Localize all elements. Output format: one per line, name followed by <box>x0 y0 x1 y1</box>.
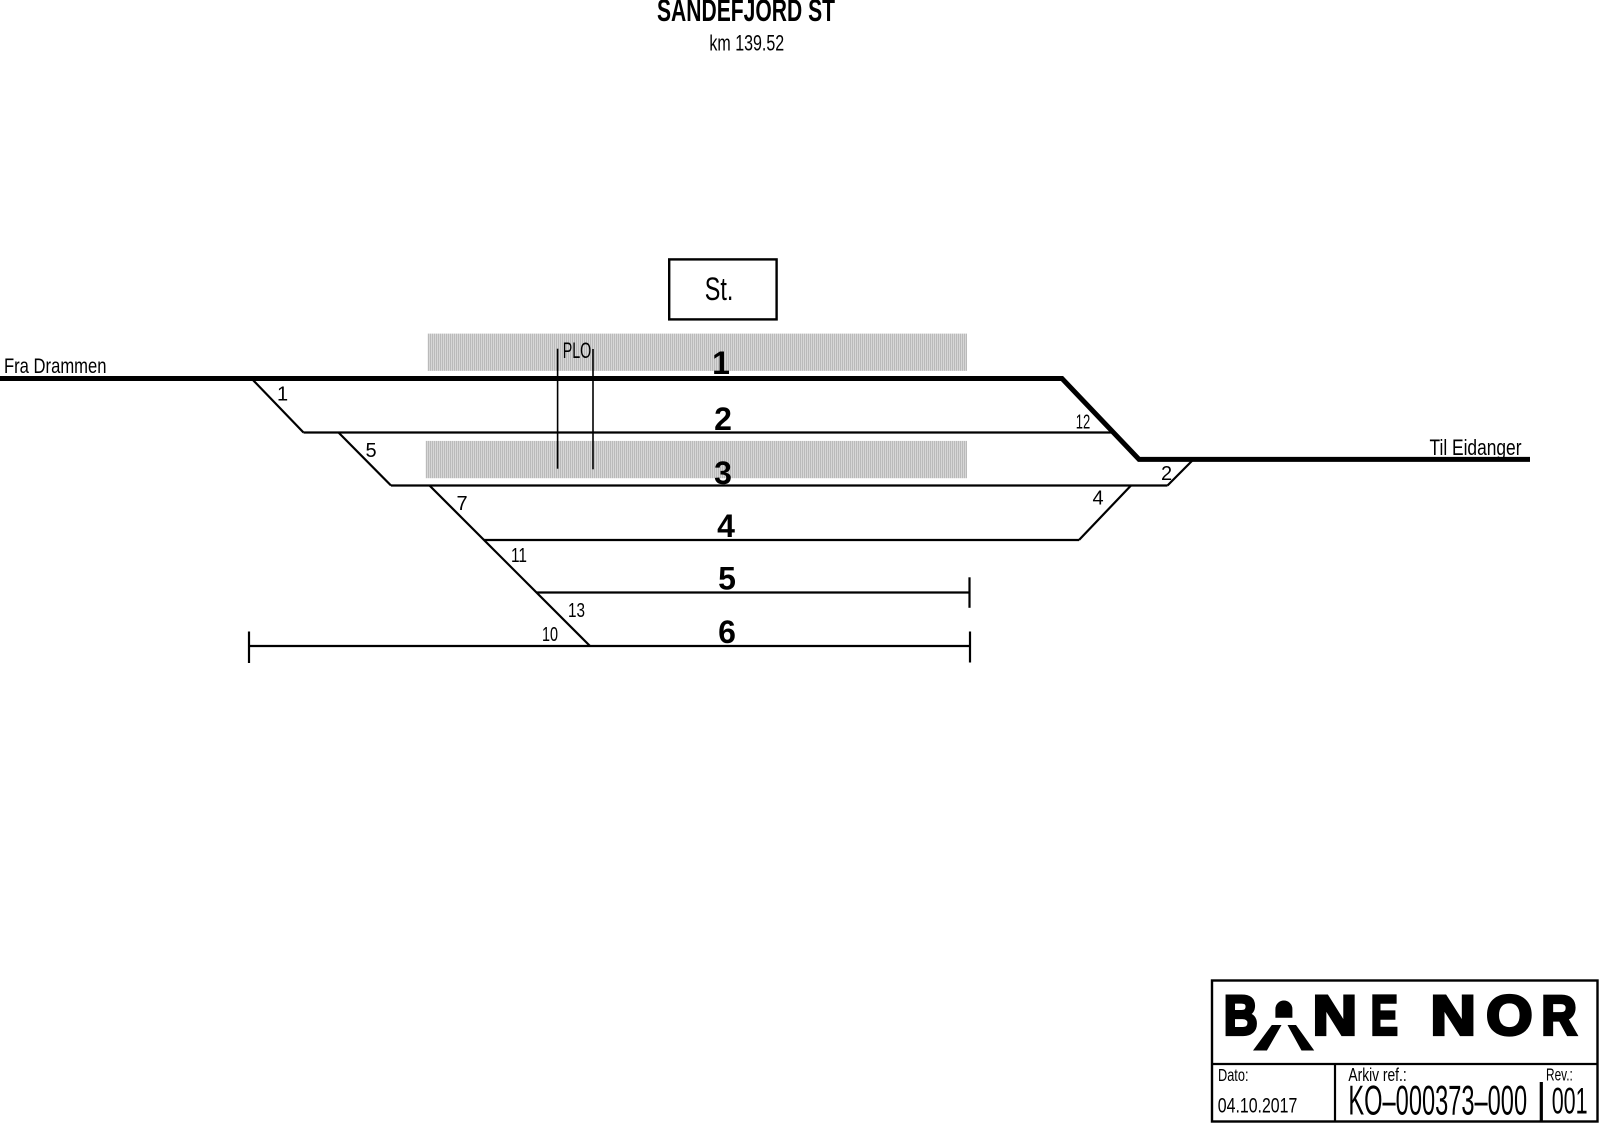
svg-text:KO–000373–000: KO–000373–000 <box>1348 1077 1527 1124</box>
svg-text:E: E <box>1371 985 1398 1047</box>
svg-text:R: R <box>1541 984 1577 1047</box>
svg-text:001: 001 <box>1552 1080 1588 1121</box>
svg-text:3: 3 <box>714 455 732 491</box>
svg-text:Dato:: Dato: <box>1218 1065 1249 1085</box>
svg-text:O: O <box>1486 985 1532 1047</box>
svg-text:7: 7 <box>456 493 467 515</box>
svg-text:km 139.52: km 139.52 <box>709 31 784 56</box>
svg-text:5: 5 <box>365 440 376 462</box>
svg-text:6: 6 <box>718 614 736 650</box>
svg-text:04.10.2017: 04.10.2017 <box>1218 1094 1298 1117</box>
svg-text:13: 13 <box>568 600 585 622</box>
svg-text:12: 12 <box>1076 412 1091 434</box>
svg-text:SANDEFJORD ST: SANDEFJORD ST <box>657 0 835 28</box>
svg-text:N: N <box>1313 985 1357 1047</box>
svg-text:N: N <box>1431 983 1476 1046</box>
svg-text:PLO: PLO <box>563 338 592 363</box>
svg-text:4: 4 <box>1092 488 1103 510</box>
svg-text:11: 11 <box>511 545 527 567</box>
svg-text:B: B <box>1224 983 1258 1046</box>
svg-text:1: 1 <box>712 345 730 381</box>
svg-text:1: 1 <box>277 384 288 406</box>
svg-text:Fra Drammen: Fra Drammen <box>4 354 107 378</box>
svg-text:10: 10 <box>542 624 558 646</box>
svg-text:Til Eidanger: Til Eidanger <box>1430 435 1522 460</box>
svg-text:2: 2 <box>1161 463 1172 485</box>
svg-text:4: 4 <box>717 508 735 544</box>
svg-text:St.: St. <box>705 271 734 307</box>
svg-text:5: 5 <box>718 561 736 597</box>
svg-text:2: 2 <box>714 401 732 437</box>
